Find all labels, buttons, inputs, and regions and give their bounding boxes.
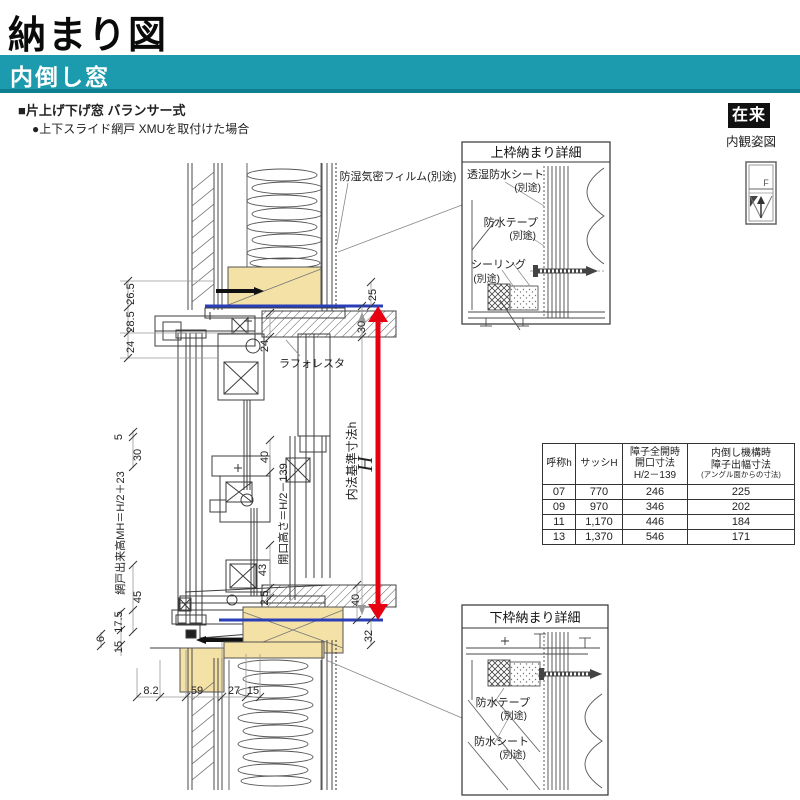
label-h-big: H [353, 455, 377, 473]
cell-tilt-09: 202 [688, 500, 795, 515]
top-wall-interior-board [322, 163, 336, 311]
col-header-opening-l3: H/2－139 [634, 470, 676, 481]
window-balancer-channel [286, 334, 330, 578]
dim-25: 25 [367, 289, 379, 301]
cell-sash-07: 770 [576, 485, 623, 500]
cell-sash-13: 1,370 [576, 530, 623, 545]
cell-name-09: 09 [543, 500, 576, 515]
detail-bottom-label1b: (別途) [500, 709, 527, 722]
col-header-tilt-l1: 内倒し機構時 [711, 448, 771, 459]
label-opening-height: 開口高さ＝H/2－139 [276, 463, 290, 564]
cell-name-07: 07 [543, 485, 576, 500]
top-header-wood-block [228, 267, 321, 307]
bottom-wall-interior-board [322, 640, 336, 790]
dim-59: 59 [191, 685, 203, 697]
detail-bottom-label1: 防水テープ [476, 695, 530, 709]
dim-2-5: 2.5 [259, 590, 271, 605]
dim-26-5: 26.5 [125, 283, 137, 304]
col-header-tilt: 内倒し機構時 障子出幅寸法 (アングル面からの寸法) [688, 444, 795, 485]
window-screen-track [176, 330, 206, 625]
col-header-tilt-l3: (アングル面からの寸法) [688, 471, 794, 480]
detail-top-label2: 防水テープ [484, 215, 538, 229]
detail-bottom-label2: 防水シート [474, 734, 529, 748]
dim-15-left: 15 [113, 641, 125, 653]
detail-bottom-title: 下枠納まり詳細 [489, 610, 580, 625]
dim-30-right: 30 [356, 321, 368, 333]
col-header-opening: 障子全開時 開口寸法 H/2－139 [623, 444, 688, 485]
detail-top-label2b: (別途) [509, 229, 536, 242]
dim-5: 5 [113, 434, 125, 440]
col-header-opening-l2: 開口寸法 [635, 458, 675, 469]
cell-tilt-07: 225 [688, 485, 795, 500]
cell-open-11: 446 [623, 515, 688, 530]
top-wall-siding [188, 163, 222, 310]
cell-open-07: 246 [623, 485, 688, 500]
dim-45: 45 [132, 591, 144, 603]
dim-28-5: 28.5 [125, 311, 137, 332]
section-drawing: 26.5 28.5 24 5 30 45 17.5 15 6 24 40 43 … [0, 0, 800, 800]
bottom-wall-insulation [229, 660, 321, 790]
cell-name-13: 13 [543, 530, 576, 545]
dim-27: 27 [228, 685, 240, 697]
detail-top-label1b: (別途) [514, 181, 541, 194]
spec-table: 呼称h サッシH 障子全開時 開口寸法 H/2－139 内倒し機構時 障子出幅寸… [542, 443, 795, 545]
callout-laforesta: ラフォレスタ [279, 357, 345, 370]
dim-8-2: 8.2 [143, 685, 158, 697]
detail-box-bottom: 下枠納まり詳細 [462, 605, 608, 795]
col-header-sash-h: サッシH [576, 444, 623, 485]
elevation-icon: F [746, 162, 776, 224]
dim-15-bottom: 15 [247, 685, 259, 697]
detail-top-label3: シーリング [471, 257, 526, 271]
dim-32: 32 [363, 630, 375, 642]
col-header-opening-l1: 障子全開時 [630, 447, 680, 458]
cell-open-13: 546 [623, 530, 688, 545]
detail-top-title: 上枠納まり詳細 [490, 145, 581, 160]
detail-top-label3b: (別途) [473, 272, 500, 285]
dim-6: 6 [95, 636, 107, 642]
label-screen-mh: 網戸出来高MH＝H/2＋23 [113, 471, 127, 594]
callout-film: 防湿気密フィルム(別途) [340, 169, 457, 183]
cell-sash-11: 1,170 [576, 515, 623, 530]
detail-box-top: 上枠納まり詳細 [462, 142, 610, 330]
detail-top-label1: 透湿防水シート [467, 167, 544, 181]
cell-open-09: 346 [623, 500, 688, 515]
cell-tilt-11: 184 [688, 515, 795, 530]
catalog-page: 納まり図 内倒し窓 ■片上げ下げ窓 バランサー式 ●上下スライド網戸 XMUを取… [0, 0, 800, 800]
cell-sash-09: 970 [576, 500, 623, 515]
col-header-name: 呼称h [543, 444, 576, 485]
dim-40-mid: 40 [259, 451, 271, 463]
table-row: 09 970 346 202 [543, 500, 795, 515]
cell-tilt-13: 171 [688, 530, 795, 545]
table-row: 07 770 246 225 [543, 485, 795, 500]
icon-fixed-letter: F [763, 178, 769, 188]
window-meeting-rail [210, 456, 270, 522]
dim-43: 43 [257, 564, 269, 576]
dim-30-left: 30 [132, 449, 144, 461]
dim-40-right: 40 [350, 594, 362, 606]
cell-name-11: 11 [543, 515, 576, 530]
dim-17-5: 17.5 [113, 611, 125, 632]
top-wall-insulation [247, 163, 322, 268]
table-row: 11 1,170 446 184 [543, 515, 795, 530]
dim-24-mid: 24 [259, 340, 271, 352]
dim-24-left: 24 [125, 341, 137, 353]
table-row: 13 1,370 546 171 [543, 530, 795, 545]
detail-bottom-label2b: (別途) [499, 748, 526, 761]
